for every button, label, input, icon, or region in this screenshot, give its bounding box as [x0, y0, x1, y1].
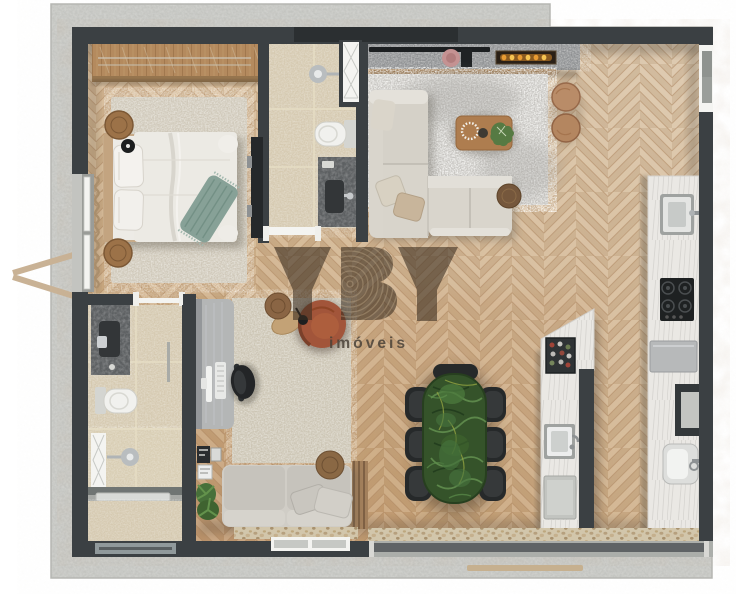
svg-text:imóveis: imóveis [329, 335, 408, 352]
